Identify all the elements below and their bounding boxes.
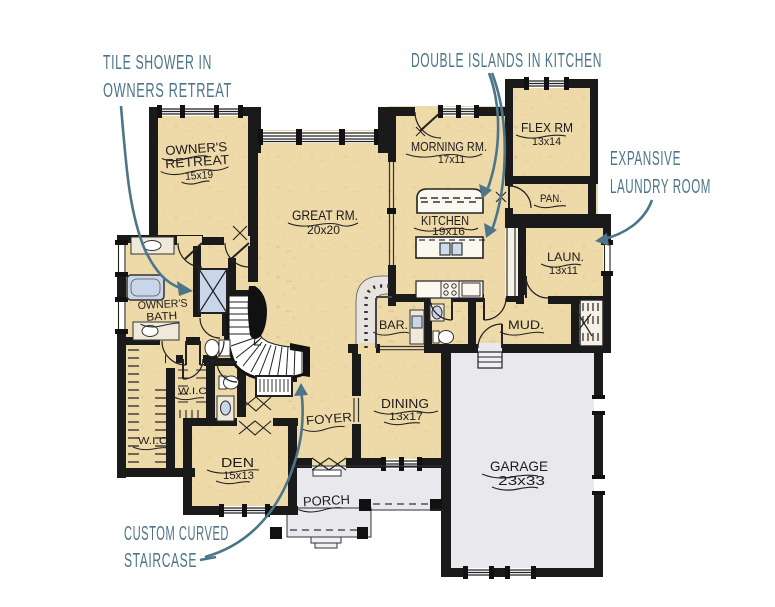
svg-text:MORNING RM.: MORNING RM. bbox=[411, 139, 487, 154]
svg-text:STAIRCASE: STAIRCASE bbox=[124, 550, 197, 572]
svg-text:DEN: DEN bbox=[221, 455, 254, 470]
svg-text:PORCH: PORCH bbox=[303, 492, 351, 509]
svg-text:PAN.: PAN. bbox=[540, 193, 562, 205]
svg-text:DOUBLE ISLANDS IN KITCHEN: DOUBLE ISLANDS IN KITCHEN bbox=[411, 50, 602, 72]
svg-text:OWNERS RETREAT: OWNERS RETREAT bbox=[103, 80, 232, 102]
svg-text:LAUN.: LAUN. bbox=[547, 250, 584, 264]
svg-text:EXPANSIVE: EXPANSIVE bbox=[610, 148, 681, 170]
svg-text:GREAT RM.: GREAT RM. bbox=[292, 208, 358, 223]
svg-text:CUSTOM CURVED: CUSTOM CURVED bbox=[124, 523, 229, 545]
svg-text:W.I.C: W.I.C bbox=[178, 386, 207, 397]
svg-text:BAR.: BAR. bbox=[379, 318, 408, 332]
svg-text:W.I.C.: W.I.C. bbox=[138, 436, 171, 447]
svg-text:DINING: DINING bbox=[381, 396, 429, 411]
svg-text:LAUNDRY ROOM: LAUNDRY ROOM bbox=[610, 176, 711, 198]
svg-text:13x17: 13x17 bbox=[389, 411, 423, 423]
svg-text:FLEX RM: FLEX RM bbox=[521, 120, 573, 135]
svg-text:19x16: 19x16 bbox=[432, 226, 465, 238]
svg-text:GARAGE: GARAGE bbox=[490, 458, 548, 474]
svg-text:MUD.: MUD. bbox=[508, 318, 544, 332]
svg-text:TILE SHOWER IN: TILE SHOWER IN bbox=[103, 52, 212, 74]
svg-text:BATH: BATH bbox=[146, 310, 178, 324]
